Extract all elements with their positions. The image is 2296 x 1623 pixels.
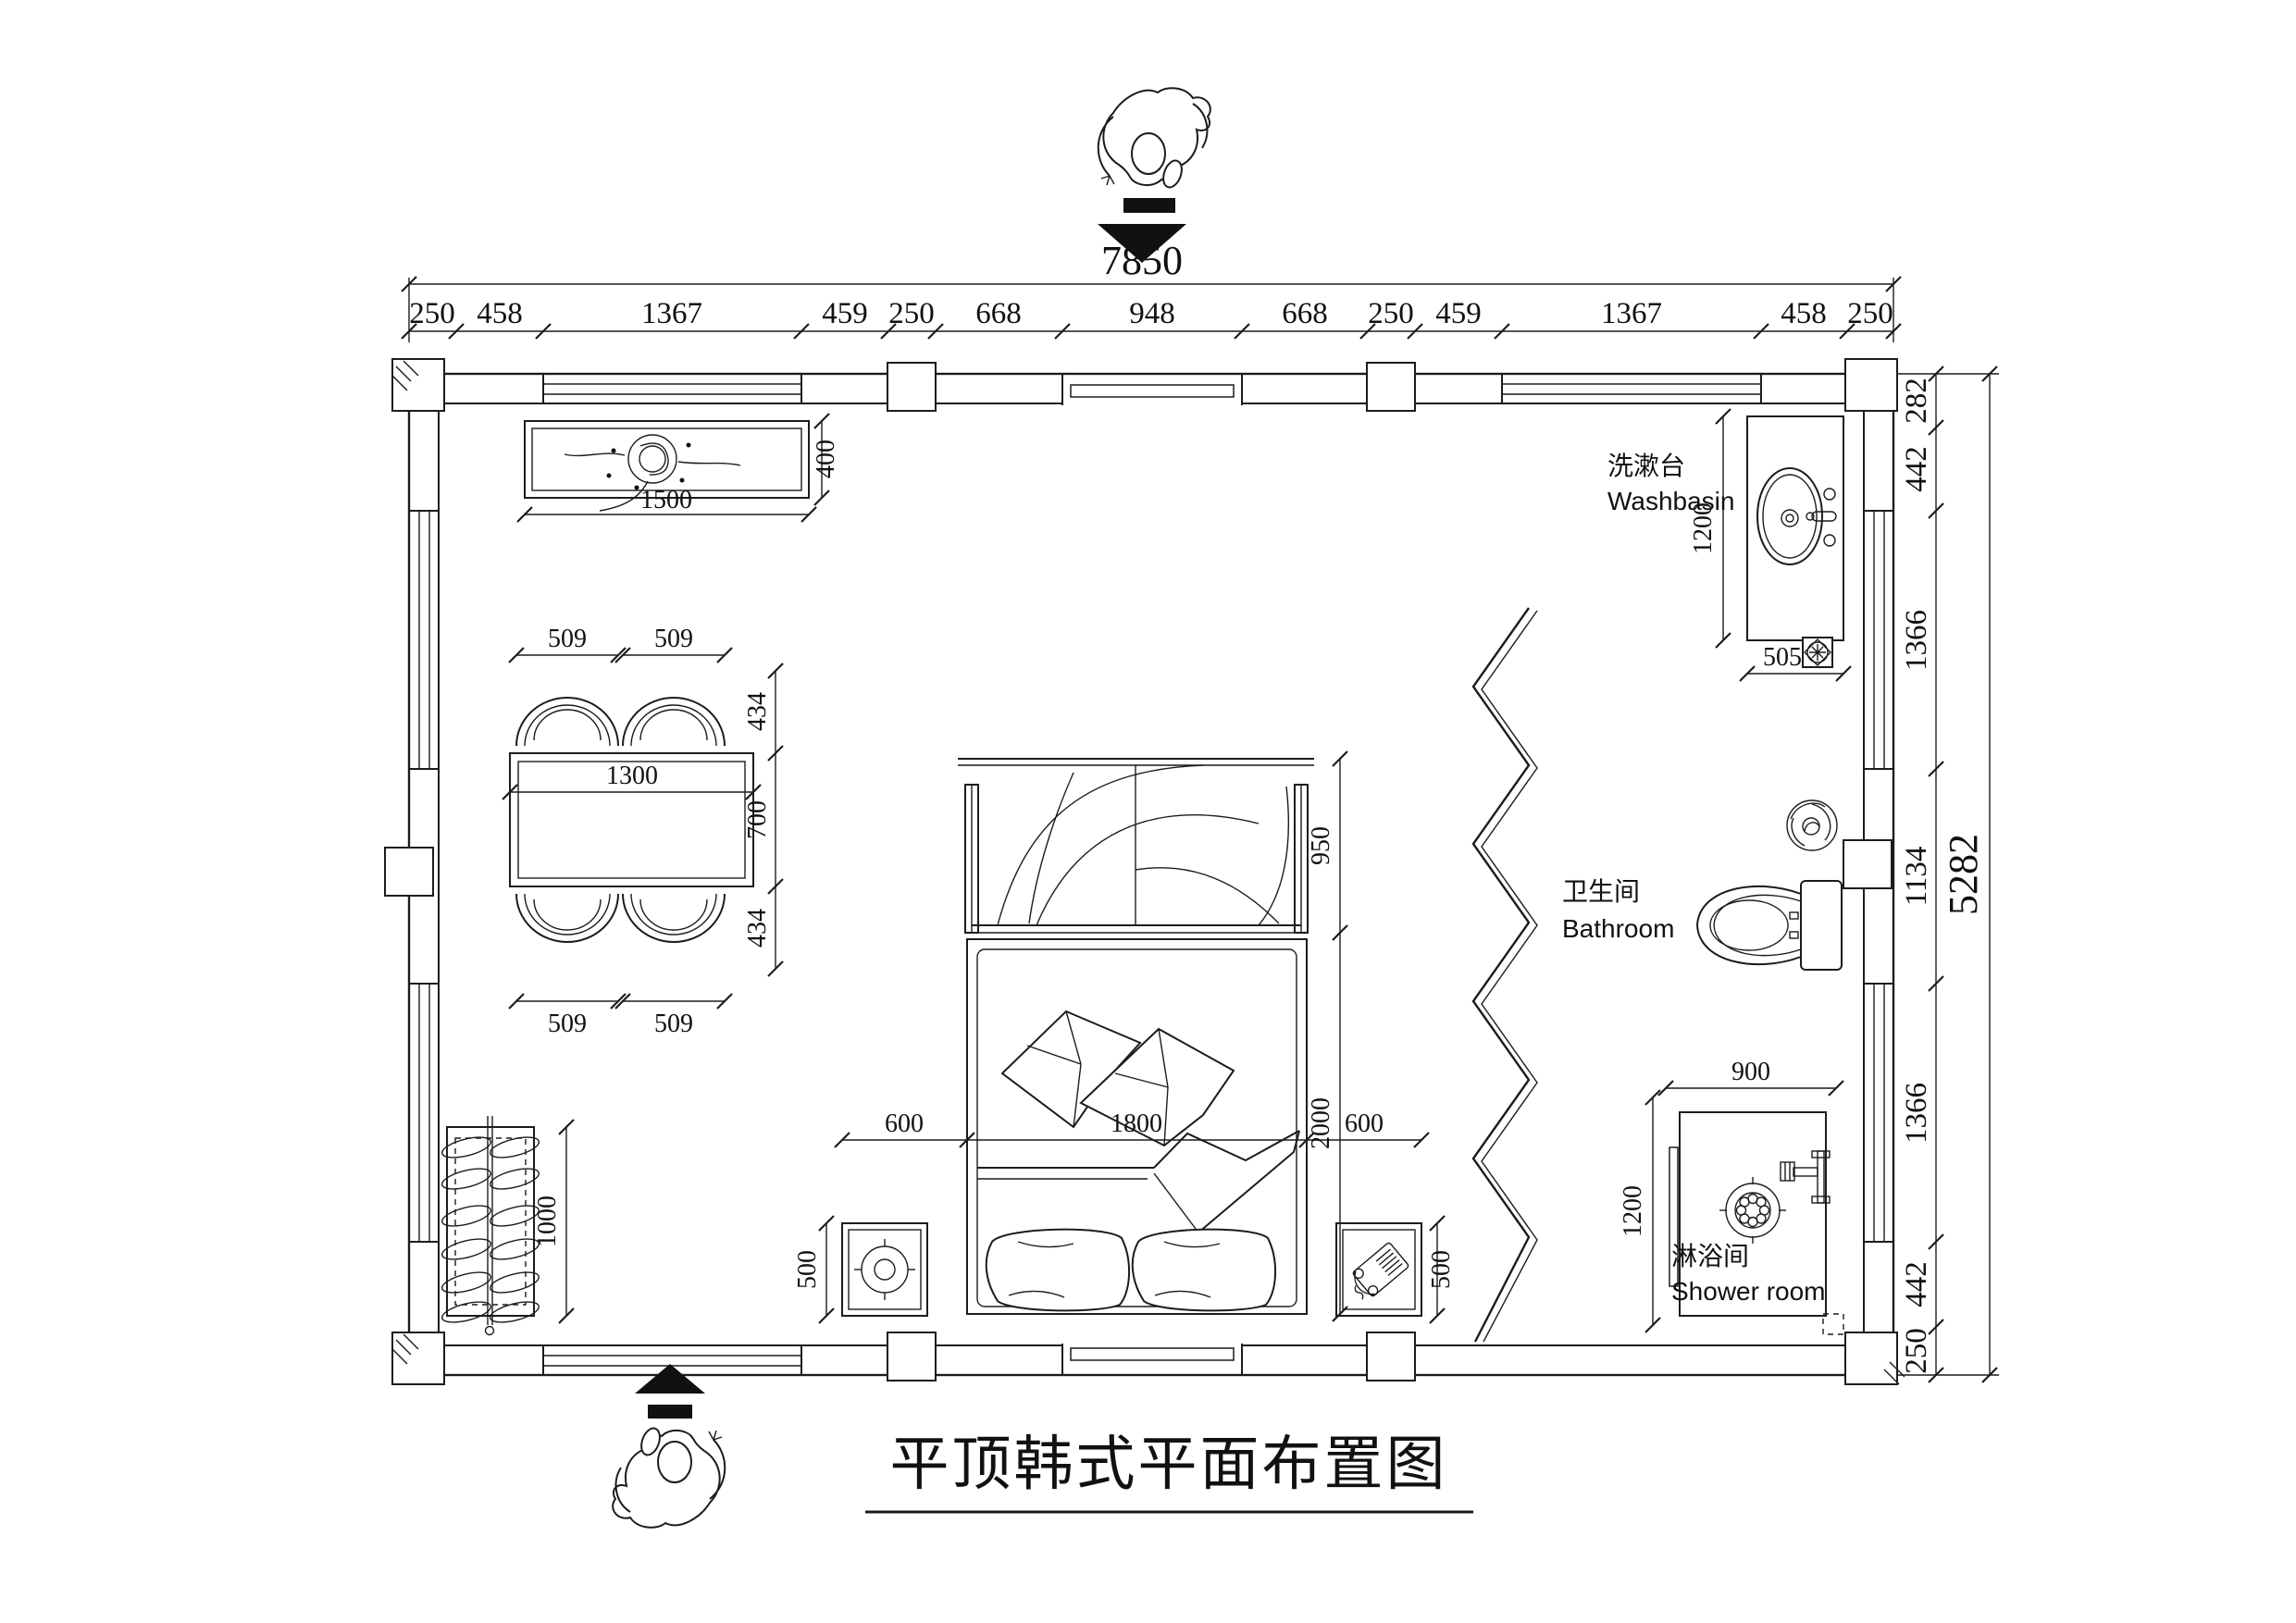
window-top-left: [543, 374, 801, 403]
window-left-upper: [409, 511, 439, 769]
bed-group: 600 1800 600 950 2000 500 500: [793, 751, 1456, 1323]
dining-chair: [516, 698, 618, 746]
shoe-rack: 1000: [441, 1116, 574, 1335]
dim-right-3: 1134: [1900, 847, 1933, 907]
shower-label-zh: 淋浴间: [1671, 1242, 1749, 1270]
dim-panel-length: 1500: [640, 486, 692, 514]
shower-head-icon: [1781, 1151, 1830, 1203]
dim-top-7: 668: [1282, 297, 1328, 330]
dim-top-11: 458: [1781, 297, 1827, 330]
dim-nightstand-left: 500: [793, 1250, 822, 1289]
dim-right-4: 1366: [1900, 1083, 1933, 1144]
dim-chair-depth: 434: [743, 909, 772, 948]
washbasin-label-en: Washbasin: [1607, 487, 1734, 515]
nightstand-left: [842, 1223, 927, 1316]
washbasin-label-zh: 洗漱台: [1607, 452, 1685, 480]
dim-table-width: 700: [743, 800, 772, 839]
window-right-lower: [1864, 984, 1893, 1242]
bathroom-area: 卫生间 Bathroom: [1562, 800, 1842, 970]
dim-panel-width: 400: [812, 440, 840, 478]
dim-top-chain: 250 458 1367 459 250 668 948 668 250 459…: [402, 278, 1901, 342]
dim-top-12: 250: [1847, 297, 1893, 330]
dim-right-6: 250: [1900, 1328, 1933, 1374]
dim-top-5: 668: [975, 297, 1022, 330]
dim-bed-side-right: 600: [1345, 1109, 1384, 1138]
window-right-upper: [1864, 511, 1893, 769]
dining-chair: [623, 894, 725, 942]
sleeping-pillow: [1133, 1230, 1275, 1311]
dim-right-1: 442: [1900, 446, 1933, 492]
dim-chair-depth: 434: [743, 692, 772, 731]
dim-right-2: 1366: [1900, 610, 1933, 671]
dim-bed-length: 2000: [1307, 1097, 1335, 1149]
dining-set: 1300 509 509 509 509 434 700 434: [503, 625, 783, 1038]
dim-top-2: 1367: [641, 297, 702, 330]
drawing-title: 平顶韩式平面布置图: [890, 1431, 1448, 1497]
dim-top-0: 250: [409, 297, 455, 330]
dim-right-0: 282: [1900, 378, 1933, 424]
entry-door-top: [1062, 374, 1242, 405]
ceiling-lamp-panel: 1500 400: [517, 414, 840, 522]
person-top: [1098, 88, 1210, 190]
dim-right-5: 442: [1900, 1261, 1933, 1307]
dim-chair-width: 509: [654, 625, 693, 653]
headboard-screen: [958, 759, 1314, 933]
dining-chair: [516, 894, 618, 942]
dim-top-4: 250: [888, 297, 935, 330]
window-top-right: [1502, 374, 1761, 403]
bathroom-label-en: Bathroom: [1562, 914, 1674, 943]
dim-nightstand-right: 500: [1427, 1250, 1456, 1289]
dim-top-8: 250: [1368, 297, 1414, 330]
dim-right-total: 5282: [1941, 366, 1997, 1382]
person-bottom: [613, 1426, 725, 1528]
blanket: [977, 1131, 1299, 1233]
floor-plan-drawing: 7850 250 458 1367 459 250 668 948 668 25…: [0, 0, 2296, 1623]
dim-chair-width: 509: [548, 625, 587, 653]
dim-chair-width: 509: [654, 1010, 693, 1038]
dim-right-total-text: 5282: [1941, 834, 1986, 915]
dim-top-3: 459: [822, 297, 868, 330]
dim-top-10: 1367: [1601, 297, 1662, 330]
shower-drain-icon: [1719, 1177, 1786, 1244]
dining-chair: [623, 698, 725, 746]
dim-shower-depth: 1200: [1619, 1185, 1647, 1237]
dim-shower-width: 900: [1731, 1058, 1770, 1086]
sleeping-pillow: [987, 1230, 1129, 1311]
dim-table-length: 1300: [606, 762, 658, 790]
dim-top-9: 459: [1435, 297, 1482, 330]
floor-drain-icon: [1803, 638, 1832, 667]
dim-shoe-rack: 1000: [533, 1196, 562, 1247]
drawing-title-block: 平顶韩式平面布置图: [865, 1431, 1473, 1512]
folding-partition: [1473, 608, 1537, 1342]
exhaust-fan-icon: [1787, 800, 1837, 850]
window-left-lower: [409, 984, 439, 1242]
bathroom-label-zh: 卫生间: [1562, 877, 1640, 906]
shower-label-en: Shower room: [1671, 1277, 1826, 1306]
dim-bed-width: 1800: [1111, 1109, 1162, 1138]
dim-bed-side-left: 600: [885, 1109, 924, 1138]
entry-door-bottom: [1062, 1344, 1242, 1375]
floor-plan-page: 7850 250 458 1367 459 250 668 948 668 25…: [0, 0, 2296, 1623]
nightstand-right: [1336, 1223, 1421, 1316]
dim-top-6: 948: [1129, 297, 1175, 330]
toilet-icon: [1697, 881, 1842, 970]
basin-icon: [1757, 468, 1836, 564]
washbasin-area: 1200 505 洗漱台 Washbasin: [1607, 409, 1851, 681]
dim-headboard-screen: 950: [1307, 826, 1335, 865]
shower-room: 900 1200 淋浴间 Shower room: [1619, 1058, 1843, 1334]
dim-chair-width: 509: [548, 1010, 587, 1038]
dim-top-1: 458: [477, 297, 523, 330]
dim-washbasin-width: 505: [1763, 643, 1802, 672]
